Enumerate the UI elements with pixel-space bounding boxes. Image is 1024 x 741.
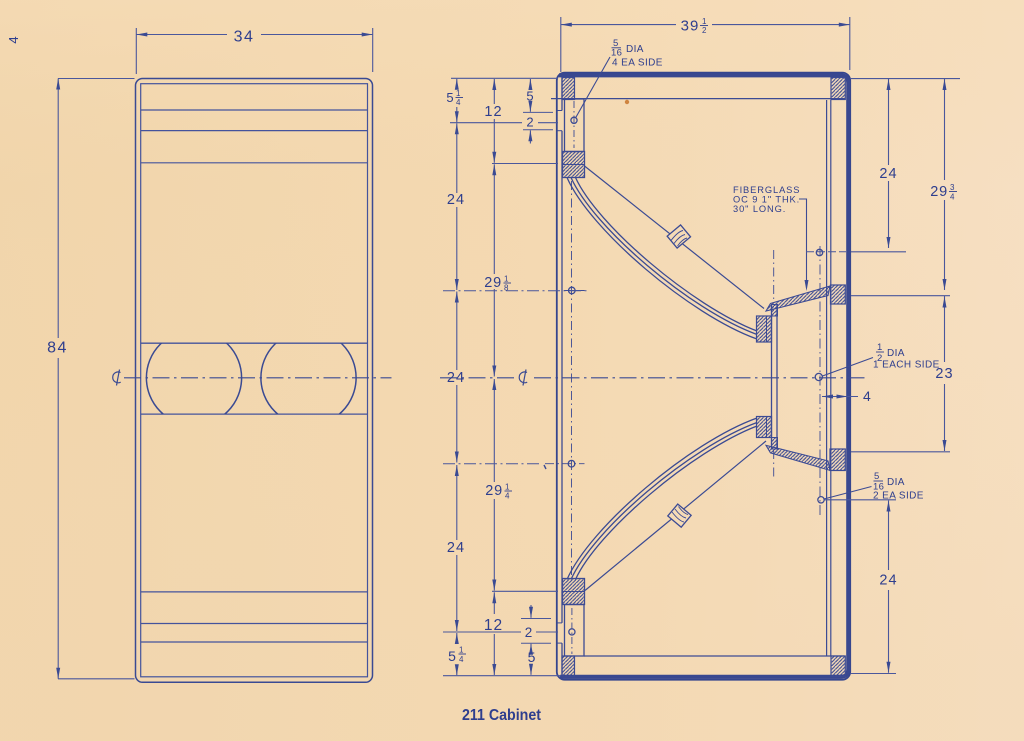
svg-text:1: 1 xyxy=(456,89,461,98)
svg-text:DIA: DIA xyxy=(626,44,644,55)
svg-text:29: 29 xyxy=(485,483,503,499)
svg-text:12: 12 xyxy=(484,104,502,120)
svg-text:DIA: DIA xyxy=(887,477,905,488)
svg-text:1: 1 xyxy=(504,275,509,284)
svg-text:4: 4 xyxy=(456,98,461,107)
svg-text:4: 4 xyxy=(950,193,955,202)
svg-text:24: 24 xyxy=(879,573,897,589)
svg-text:4: 4 xyxy=(505,492,510,501)
svg-text:29: 29 xyxy=(484,275,502,291)
svg-text:1: 1 xyxy=(702,17,707,26)
svg-text:2: 2 xyxy=(526,115,533,130)
svg-text:5: 5 xyxy=(446,90,453,105)
svg-text:1: 1 xyxy=(459,646,464,655)
svg-text:23: 23 xyxy=(935,366,953,382)
svg-text:1: 1 xyxy=(877,342,883,353)
svg-text:34: 34 xyxy=(234,29,255,46)
svg-text:24: 24 xyxy=(879,166,897,182)
svg-text:29: 29 xyxy=(930,184,948,200)
svg-text:5: 5 xyxy=(526,89,533,104)
svg-text:1 EACH SIDE: 1 EACH SIDE xyxy=(873,360,940,371)
svg-text:8: 8 xyxy=(504,284,509,293)
svg-text:DIA: DIA xyxy=(887,348,905,359)
svg-text:2: 2 xyxy=(525,625,533,640)
svg-text:4: 4 xyxy=(6,36,21,43)
svg-text:2: 2 xyxy=(702,26,707,35)
svg-text:12: 12 xyxy=(484,617,503,634)
svg-text:4 EA SIDE: 4 EA SIDE xyxy=(612,58,663,69)
svg-text:1: 1 xyxy=(505,483,510,492)
svg-text:OC 9 1" THK.: OC 9 1" THK. xyxy=(733,195,800,205)
svg-text:5: 5 xyxy=(874,471,880,482)
svg-text:4: 4 xyxy=(459,655,464,664)
svg-text:211 Cabinet: 211 Cabinet xyxy=(462,707,541,724)
svg-text:5: 5 xyxy=(448,648,456,664)
svg-text:5: 5 xyxy=(528,649,536,665)
svg-text:24: 24 xyxy=(447,192,465,208)
svg-text:FIBERGLASS: FIBERGLASS xyxy=(733,185,800,195)
svg-text:24: 24 xyxy=(447,540,465,556)
svg-text:39: 39 xyxy=(681,18,700,35)
svg-text:24: 24 xyxy=(447,370,465,386)
svg-text:3: 3 xyxy=(950,183,955,192)
svg-text:84: 84 xyxy=(47,340,68,357)
svg-text:4: 4 xyxy=(863,388,871,404)
svg-text:30" LONG.: 30" LONG. xyxy=(733,204,786,214)
